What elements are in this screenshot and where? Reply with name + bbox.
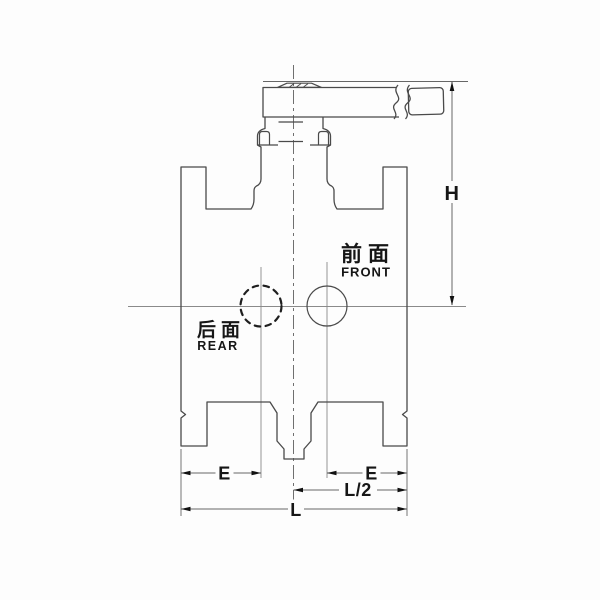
handle-grip-end (408, 88, 444, 115)
dimension-h-label: H (445, 183, 460, 205)
break-line-icon (394, 85, 399, 119)
label-rear-cn: 后面 (197, 319, 245, 341)
dimension-l-half-label: L/2 (344, 480, 372, 500)
arrow-icon (181, 507, 191, 512)
label-front-en: FRONT (341, 265, 391, 280)
drawing-canvas: H E E L/2 L 前面 FRONT 后面 (0, 0, 600, 600)
dimension-e-left: E (181, 449, 261, 516)
arrow-icon (398, 488, 408, 493)
arrow-icon (252, 471, 262, 476)
annotation-front: 前面 FRONT (341, 242, 395, 280)
dimension-l-half: L/2 (294, 480, 408, 501)
arrow-icon (181, 471, 191, 476)
arrow-icon (450, 82, 455, 92)
bolt-slot-left (260, 132, 270, 146)
annotation-rear: 后面 REAR (197, 319, 245, 353)
bolt-slot-right (319, 132, 329, 146)
arrow-icon (450, 296, 455, 306)
dimension-e-left-label: E (218, 464, 231, 484)
arrow-icon (398, 507, 408, 512)
arrow-icon (398, 471, 408, 476)
valve-technical-drawing: H E E L/2 L 前面 FRONT 后面 (0, 0, 600, 600)
stem-nut (278, 83, 322, 87)
label-rear-en: REAR (197, 339, 238, 353)
arrow-icon (294, 488, 304, 493)
label-front-cn: 前面 (341, 242, 395, 266)
dimension-l-label: L (290, 500, 302, 520)
handle (263, 85, 444, 119)
arrow-icon (327, 471, 337, 476)
